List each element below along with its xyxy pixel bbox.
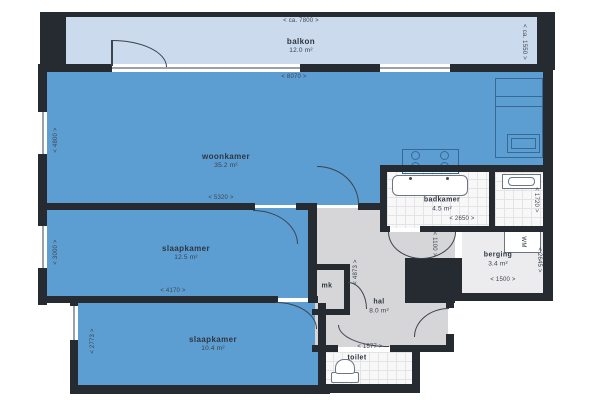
wall	[47, 64, 112, 72]
dim-slaapkamer1-width: < 4170 >	[160, 288, 185, 294]
dim-woonkamer-lower-width: < 5320 >	[208, 195, 233, 201]
room-area: 35.2 m²	[202, 162, 250, 170]
dim-slaapkamer2-depth: < 2773 >	[90, 328, 96, 353]
room-name: woonkamer	[202, 152, 250, 162]
room-area: 8.0 m²	[369, 307, 389, 315]
label-woonkamer: woonkamer 35.2 m²	[202, 152, 250, 170]
label-slaapkamer-2: slaapkamer 10.4 m²	[189, 335, 237, 353]
dim-hal-arm: < 1100 >	[431, 232, 437, 257]
label-slaapkamer-1: slaapkamer 12.5 m²	[162, 244, 210, 262]
wall	[38, 64, 47, 305]
wall	[312, 345, 338, 352]
dim-badkamer-depth: < 1720 >	[533, 187, 539, 212]
room-area: 12.5 m²	[162, 254, 210, 262]
wall	[300, 64, 380, 72]
room-name: toilet	[347, 355, 366, 364]
label-berging: berging 3.4 m²	[484, 252, 512, 269]
wm-label: WM	[520, 236, 526, 247]
wall	[380, 165, 545, 172]
window	[38, 226, 47, 268]
room-area: 3.4 m²	[484, 260, 512, 268]
label-balkon: balkon 12.0 m²	[287, 37, 315, 55]
dim-woonkamer-width: < 8070 >	[281, 74, 306, 80]
wall	[537, 12, 555, 70]
floor-plan: WM balkon 12.0 m²	[0, 0, 600, 400]
room-area: 4.5 m²	[424, 205, 460, 213]
room-name: mk	[322, 283, 333, 292]
room-name: berging	[484, 252, 512, 261]
kitchen-counter-divider	[495, 106, 543, 107]
dim-woonkamer-depth: < 4800 >	[53, 127, 59, 152]
cooktop-burner	[411, 151, 420, 160]
wall	[66, 12, 537, 17]
room-area: 10.4 m²	[189, 345, 237, 353]
label-hal: hal 8.0 m²	[369, 299, 389, 316]
room-name: hal	[369, 299, 389, 308]
bathtub	[392, 175, 468, 196]
bathtub-tap	[409, 177, 412, 180]
wall	[70, 385, 330, 394]
kitchen-sink-basin	[511, 138, 536, 149]
label-mk: mk	[322, 283, 333, 292]
wall	[358, 203, 382, 210]
room-woonkamer	[47, 70, 545, 170]
dim-balkon-depth: < ca. 1550 >	[521, 24, 527, 60]
cooktop-burner	[440, 151, 449, 160]
wall	[312, 296, 318, 303]
wall	[543, 68, 553, 300]
dim-slaapkamer1-depth: < 3000 >	[53, 239, 59, 264]
room-name: balkon	[287, 37, 315, 47]
room-name: badkamer	[424, 197, 460, 206]
dim-hal-depth: < 4873 >	[353, 259, 359, 284]
wall	[390, 345, 452, 352]
dim-hal-width: < 1577 >	[357, 344, 382, 350]
wall	[312, 309, 350, 315]
window	[38, 112, 47, 154]
kitchen-counter-divider	[495, 96, 543, 97]
window	[70, 306, 78, 340]
dim-berging-depth: < 2645 >	[536, 247, 542, 272]
wall	[380, 165, 387, 232]
dim-berging-width: < 1500 >	[490, 277, 515, 283]
wall	[455, 258, 462, 293]
room-name: slaapkamer	[189, 335, 237, 345]
wall	[308, 203, 317, 303]
wall	[489, 172, 495, 230]
washbasin-bowl	[508, 177, 535, 186]
window	[380, 64, 450, 72]
wall	[448, 293, 553, 301]
label-badkamer: badkamer 4.5 m²	[424, 197, 460, 214]
wall	[38, 203, 255, 210]
wall	[40, 12, 66, 70]
wall	[318, 384, 420, 393]
wall	[450, 64, 553, 72]
door-leaf	[111, 40, 113, 66]
label-toilet: toilet	[347, 355, 366, 364]
bathtub-tap	[446, 177, 449, 180]
room-name: slaapkamer	[162, 244, 210, 254]
room-area: 12.0 m²	[287, 47, 315, 55]
dim-badkamer-width: < 2650 >	[449, 216, 474, 222]
dim-balkon-width: < ca. 7800 >	[283, 18, 319, 24]
